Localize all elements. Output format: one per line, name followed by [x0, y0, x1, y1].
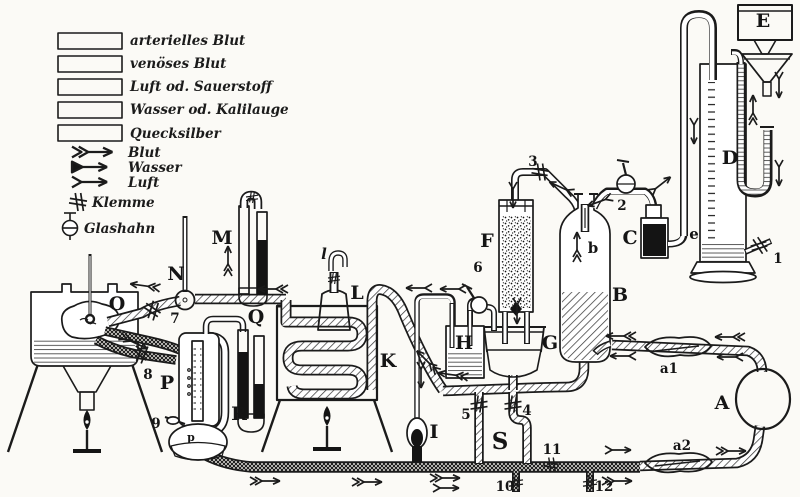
label-5: 5 — [461, 407, 470, 423]
label-9: 9 — [151, 416, 160, 432]
stopcock-1 — [745, 235, 771, 258]
flow-arrow-air — [433, 484, 459, 492]
label-K: K — [380, 350, 398, 372]
bottle-C-mercury — [643, 224, 666, 256]
burner — [73, 410, 101, 453]
water-supply-E — [731, 5, 792, 193]
pedestal — [62, 364, 112, 392]
swatch-horizontal-lines — [58, 102, 122, 118]
label-I: I — [430, 421, 439, 443]
clamp-symbol-icon — [69, 193, 87, 211]
flow-arrow-air — [605, 446, 631, 454]
bottle-C-neck — [646, 205, 661, 218]
column-F-granules — [502, 216, 531, 308]
funnel-G-blood — [487, 350, 541, 377]
label-3: 3 — [528, 154, 537, 170]
label-R: R — [231, 403, 247, 425]
manometer-M-blood-limb — [239, 206, 249, 294]
arrow-double-chevron-icon — [72, 147, 113, 158]
swatch-solid-black — [58, 125, 122, 141]
flow-arrow-air — [775, 160, 783, 186]
stand-leg — [374, 400, 392, 452]
label-1: 1 — [773, 251, 782, 267]
burner — [313, 406, 341, 451]
label-B: B — [612, 284, 628, 306]
label-L: L — [350, 282, 363, 304]
label-C: C — [622, 227, 637, 249]
label-A: A — [714, 392, 730, 414]
flow-arrow-air — [690, 118, 698, 144]
label-H: H — [455, 332, 473, 354]
label-11: 11 — [543, 442, 562, 458]
legend-label-luft: Luft — [127, 175, 160, 191]
flow-arrow-blood — [258, 285, 288, 293]
label-E: E — [756, 10, 770, 32]
flow-arrow-air — [406, 284, 432, 292]
label-Q: Q — [248, 306, 265, 328]
label-l: l — [321, 245, 327, 263]
label-2: 2 — [617, 198, 626, 214]
swatch-plain-white — [58, 79, 122, 95]
label-P: P — [160, 372, 174, 394]
flow-arrow-blood — [606, 332, 636, 340]
bottom-venous-pipe — [206, 455, 640, 492]
legend-label-arterial: arterielles Blut — [130, 33, 246, 49]
vessel-P-graduations — [194, 348, 202, 414]
label-e: e — [689, 225, 699, 243]
label-F: F — [480, 230, 494, 252]
flow-arrow-blood — [430, 474, 460, 482]
reservoir-E-stem — [754, 40, 776, 54]
flow-arrow-blood — [352, 478, 382, 486]
flow-arrow-up — [749, 95, 757, 125]
label-M: M — [211, 227, 232, 249]
funnel — [742, 54, 792, 82]
flow-arrow-air — [440, 285, 466, 293]
manometer-Q-mercury-right — [254, 384, 264, 418]
legend-label-air: Luft od. Sauerstoff — [129, 79, 275, 95]
legend-label-wasser: Wasser — [128, 160, 183, 176]
perfusion-apparatus-engraving: arterielles Blut venöses Blut Luft od. S… — [0, 0, 800, 497]
swatch-cross-hatch — [58, 56, 122, 72]
pedestal-stem — [80, 392, 94, 410]
legend-label-glashahn: Glashahn — [84, 221, 155, 237]
arrow-filled-head-icon — [72, 162, 107, 173]
burette-D-water — [702, 242, 744, 261]
flow-arrow-blood — [224, 246, 232, 276]
flow-arrow-air — [775, 72, 783, 98]
label-8: 8 — [143, 367, 152, 383]
flow-arrow-air — [610, 352, 636, 360]
arrow-single-chevron-icon — [72, 177, 107, 188]
label-D: D — [722, 147, 738, 169]
stopcock-2 — [617, 160, 635, 193]
valve-I-stem — [412, 446, 422, 462]
stand-leg — [8, 364, 38, 452]
label-b: b — [588, 239, 599, 257]
pump-bulb-A — [736, 369, 790, 429]
swatch-diagonal-hatch — [58, 33, 122, 49]
diagram-canvas: arterielles Blut venöses Blut Luft od. S… — [0, 0, 800, 497]
label-O: O — [109, 293, 126, 315]
label-S: S — [492, 428, 509, 455]
valve-I-mercury — [411, 429, 423, 447]
label-a1: a1 — [660, 361, 678, 377]
funnel-spout — [763, 82, 771, 96]
stopcock-symbol-icon — [63, 213, 78, 240]
label-7: 7 — [170, 311, 179, 327]
legend-label-venous: venöses Blut — [130, 56, 227, 72]
stopcock-6 — [462, 284, 487, 313]
label-12: 12 — [595, 479, 614, 495]
label-N: N — [167, 263, 184, 285]
legend-label-mercury: Quecksilber — [130, 126, 222, 142]
legend-label-klemme: Klemme — [91, 195, 155, 211]
label-G: G — [542, 332, 558, 354]
flow-arrow-blood — [715, 333, 745, 341]
burette-D-graduations — [706, 82, 715, 242]
flow-arrow-blood — [250, 477, 280, 485]
legend-label-water: Wasser od. Kalilauge — [130, 102, 289, 118]
label-a2: a2 — [673, 438, 691, 454]
beaker-H-water — [448, 352, 482, 376]
label-p: p — [187, 431, 195, 444]
oxygen-bottle-B — [560, 194, 610, 362]
pump-circuit — [612, 337, 790, 472]
flow-arrow-blood — [130, 280, 161, 292]
flow-arrow-blood — [716, 447, 746, 455]
legend-label-blut: Blut — [127, 145, 161, 161]
label-4: 4 — [522, 403, 531, 419]
label-10: 10 — [496, 479, 515, 495]
mixing-funnel-G — [479, 327, 546, 464]
label-6: 6 — [473, 260, 482, 276]
burette-D-foot — [690, 272, 756, 283]
